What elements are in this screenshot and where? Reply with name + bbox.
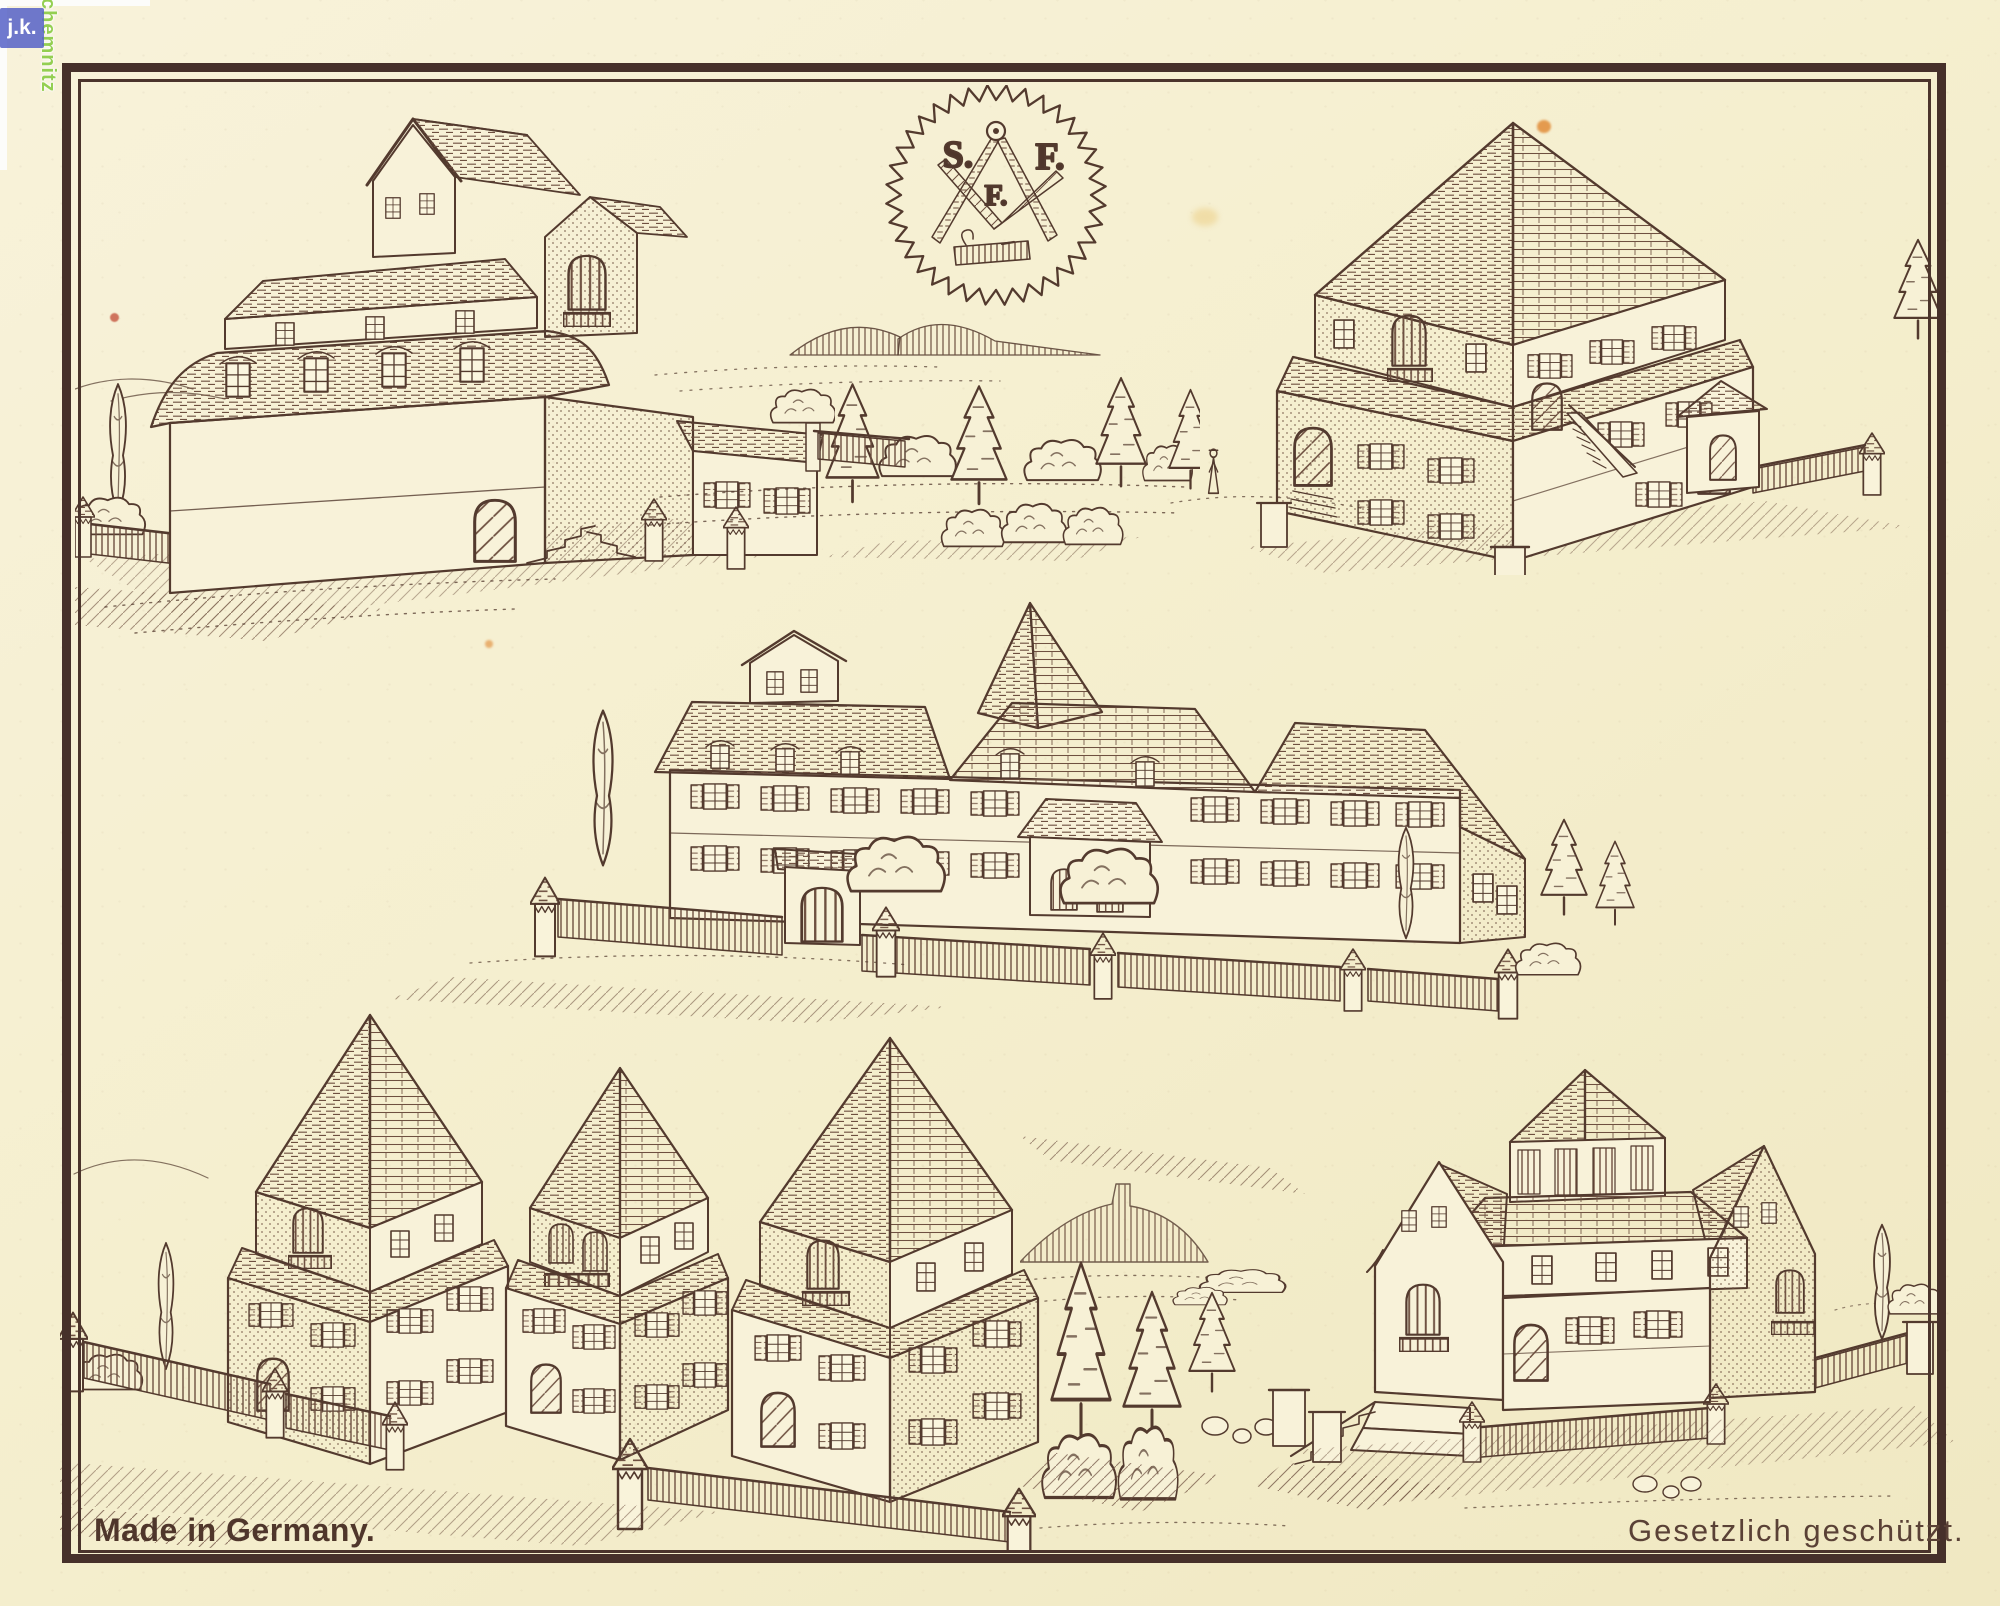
scan-page: S. F. F.: [0, 0, 2000, 1606]
watermark-initials: j.k.: [7, 16, 36, 40]
scan-edge: [0, 0, 150, 6]
caption-made-in-germany: Made in Germany.: [94, 1512, 375, 1549]
plate-border-inner: [78, 79, 1931, 1553]
caption-gesetzlich-geschuetzt: Gesetzlich geschützt.: [1628, 1513, 1965, 1549]
watermark-initials-badge: j.k.: [0, 8, 44, 48]
